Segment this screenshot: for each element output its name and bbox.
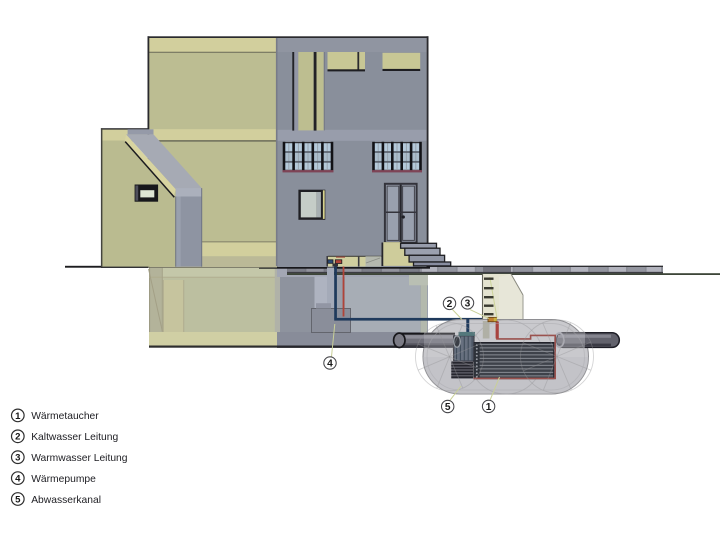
svg-text:Wärmepumpe: Wärmepumpe: [31, 474, 96, 485]
svg-text:5: 5: [15, 494, 21, 505]
svg-text:2: 2: [15, 432, 20, 443]
svg-text:Warmwasser Leitung: Warmwasser Leitung: [31, 453, 128, 464]
svg-text:1: 1: [486, 402, 492, 413]
svg-text:3: 3: [465, 299, 471, 310]
svg-text:Abwasserkanal: Abwasserkanal: [31, 495, 101, 506]
svg-text:4: 4: [327, 359, 333, 370]
svg-text:Kaltwasser Leitung: Kaltwasser Leitung: [31, 432, 118, 443]
svg-text:3: 3: [15, 453, 20, 464]
svg-text:2: 2: [447, 299, 453, 310]
svg-text:Wärmetaucher: Wärmetaucher: [31, 411, 99, 422]
svg-text:1: 1: [15, 411, 21, 422]
svg-text:4: 4: [15, 474, 21, 485]
svg-text:5: 5: [445, 402, 451, 413]
